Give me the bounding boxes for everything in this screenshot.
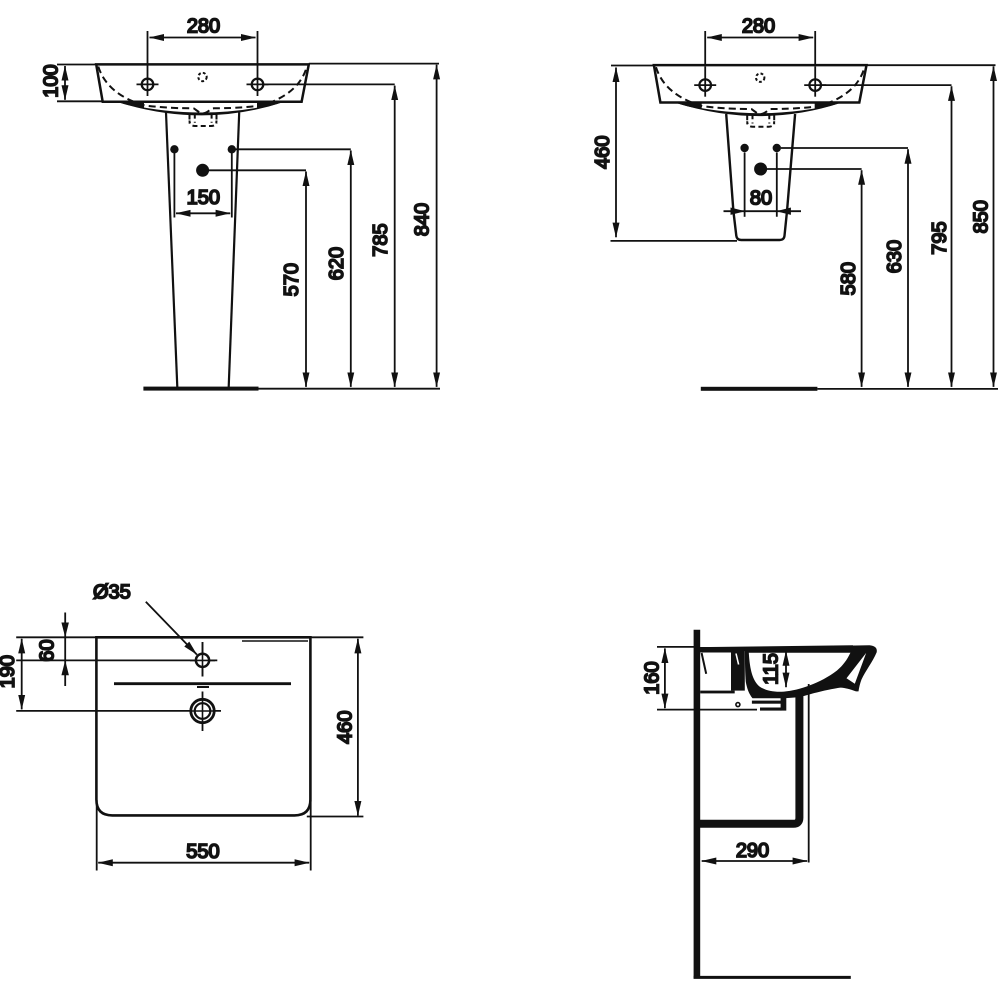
svg-text:785: 785	[370, 223, 392, 256]
svg-text:280: 280	[742, 16, 775, 38]
svg-text:840: 840	[411, 203, 433, 236]
svg-text:460: 460	[335, 711, 357, 744]
svg-text:115: 115	[761, 653, 783, 685]
svg-text:80: 80	[750, 188, 772, 210]
svg-text:795: 795	[929, 221, 951, 254]
svg-text:850: 850	[971, 200, 993, 233]
svg-text:100: 100	[41, 64, 63, 97]
svg-text:150: 150	[187, 187, 220, 209]
svg-text:630: 630	[884, 240, 906, 273]
svg-text:160: 160	[642, 661, 664, 694]
svg-text:580: 580	[838, 262, 860, 295]
svg-text:280: 280	[187, 16, 220, 38]
svg-text:Ø35: Ø35	[93, 581, 131, 603]
svg-text:550: 550	[186, 841, 219, 863]
svg-text:620: 620	[326, 247, 348, 280]
svg-text:290: 290	[736, 840, 769, 862]
svg-text:460: 460	[592, 136, 614, 169]
svg-text:570: 570	[281, 263, 303, 296]
svg-text:190: 190	[0, 655, 19, 688]
svg-text:60: 60	[37, 639, 59, 661]
